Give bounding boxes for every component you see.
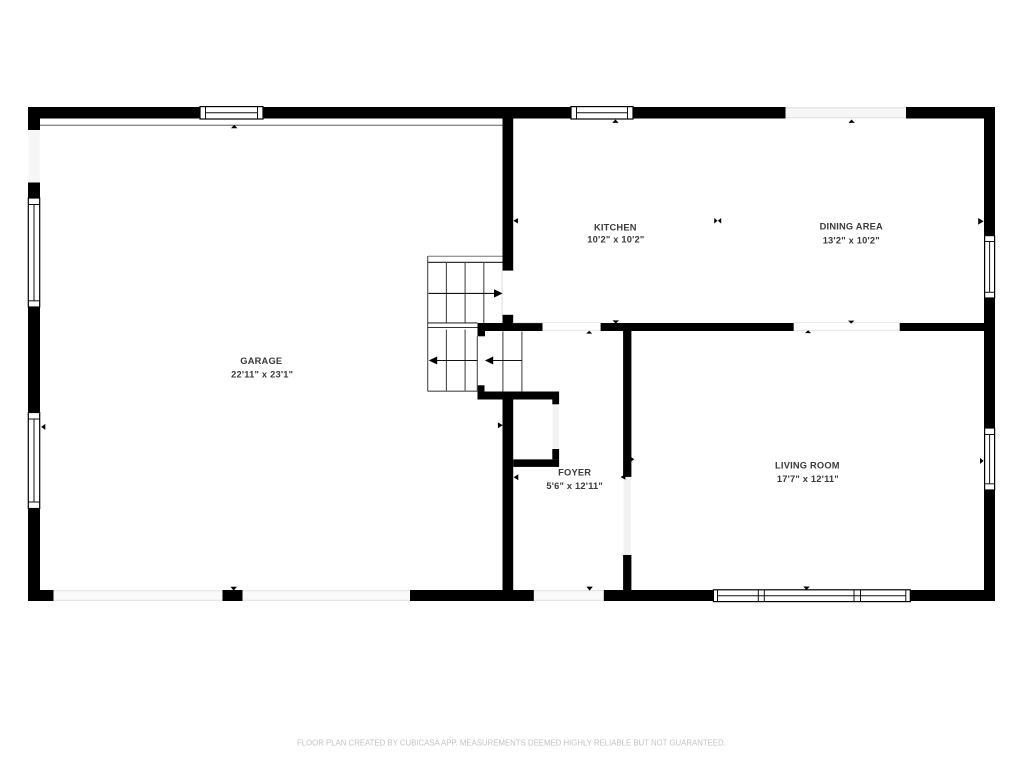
svg-text:LIVING ROOM: LIVING ROOM (775, 460, 840, 470)
svg-text:13'2" x 10'2": 13'2" x 10'2" (823, 235, 880, 245)
svg-text:10'2" x 10'2": 10'2" x 10'2" (587, 235, 644, 245)
svg-text:FOYER: FOYER (558, 467, 591, 477)
svg-text:5'6" x 12'11": 5'6" x 12'11" (546, 481, 603, 491)
svg-text:KITCHEN: KITCHEN (594, 222, 637, 232)
svg-text:FLOOR PLAN CREATED BY CUBICASA: FLOOR PLAN CREATED BY CUBICASA APP. MEAS… (297, 738, 726, 747)
svg-text:GARAGE: GARAGE (240, 356, 282, 366)
svg-text:17'7" x 12'11": 17'7" x 12'11" (777, 474, 839, 484)
svg-text:22'11" x 23'1": 22'11" x 23'1" (231, 369, 293, 379)
svg-text:DINING AREA: DINING AREA (820, 221, 883, 231)
